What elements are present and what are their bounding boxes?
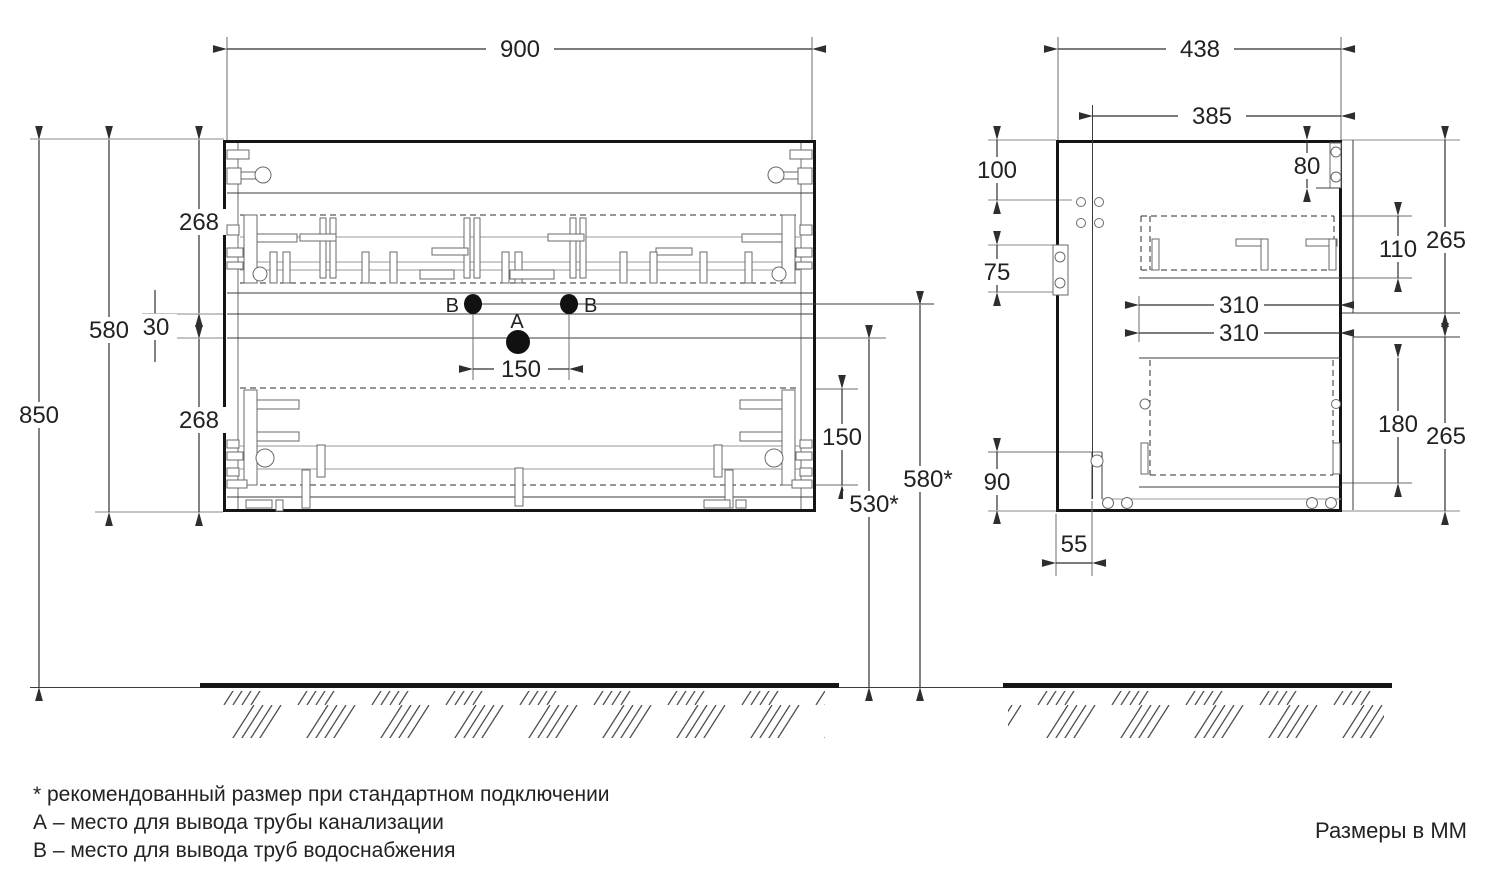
note-recommended: * рекомендованный размер при стандартном… xyxy=(33,783,610,806)
note-water: В – место для вывода труб водоснабжения xyxy=(33,839,455,862)
label-water-left: В xyxy=(446,295,459,317)
units-note: Размеры в ММ xyxy=(1315,818,1467,843)
floor-hatch-left xyxy=(222,691,825,738)
dim-bottom-front-height: 265 xyxy=(1426,423,1466,450)
side-upper-drawer-box xyxy=(1139,216,1341,278)
dim-drain-outlet-height: 530* xyxy=(849,491,898,518)
dim-depth: 438 xyxy=(1180,36,1220,63)
dim-inner-depth: 385 xyxy=(1192,103,1232,130)
water-hole-left xyxy=(464,294,482,314)
dim-bottom-drawer-height: 268 xyxy=(179,407,219,434)
floor-hatch-right xyxy=(1008,691,1384,738)
dim-hinge-plate-height: 80 xyxy=(1294,153,1321,180)
outlet-holes: В В А xyxy=(446,294,934,354)
floor-line xyxy=(30,683,1392,738)
vanity-dimension-drawing: В В А 900 850 580 268 30 xyxy=(0,0,1500,877)
dim-front-width: 900 xyxy=(500,36,540,63)
dim-mount-plate-height: 75 xyxy=(984,259,1011,286)
side-view: 438 385 100 75 90 55 80 110 265 310 310 … xyxy=(973,36,1471,576)
technical-drawing-page: В В А 900 850 580 268 30 xyxy=(0,0,1500,877)
side-lower-drawer-box xyxy=(1139,358,1341,487)
dim-bottom-offset: 90 xyxy=(984,469,1011,496)
dim-cabinet-height: 580 xyxy=(89,317,129,344)
drain-hole xyxy=(506,330,530,354)
front-view: В В А 900 850 580 268 30 xyxy=(12,36,959,687)
note-drain: А – место для вывода трубы канализации xyxy=(33,811,444,834)
dim-total-height: 850 xyxy=(19,402,59,429)
dim-top-box-height: 110 xyxy=(1379,236,1417,263)
dim-top-box-depth: 310 xyxy=(1219,292,1259,319)
dim-top-drawer-height: 268 xyxy=(179,209,219,236)
upper-drawer-hardware xyxy=(227,150,812,283)
dim-water-outlet-height: 580* xyxy=(903,466,952,493)
dim-back-recess: 55 xyxy=(1061,531,1088,558)
label-water-right: В xyxy=(584,295,597,317)
notes-block: * рекомендованный размер при стандартном… xyxy=(33,783,1467,862)
dim-bottom-box-height: 180 xyxy=(1378,411,1418,438)
dim-gap: 30 xyxy=(143,314,170,341)
dim-top-front-height: 265 xyxy=(1426,227,1466,254)
water-hole-right xyxy=(560,294,578,314)
dim-holes-spacing: 150 xyxy=(501,356,541,383)
side-bottom-hardware xyxy=(1091,452,1341,509)
lower-drawer-hardware xyxy=(227,390,812,511)
dim-hole-top-offset: 100 xyxy=(977,157,1017,184)
dim-bottom-box-depth: 310 xyxy=(1219,320,1259,347)
dim-drawer-box-height: 150 xyxy=(822,424,862,451)
label-drain: А xyxy=(510,311,524,333)
